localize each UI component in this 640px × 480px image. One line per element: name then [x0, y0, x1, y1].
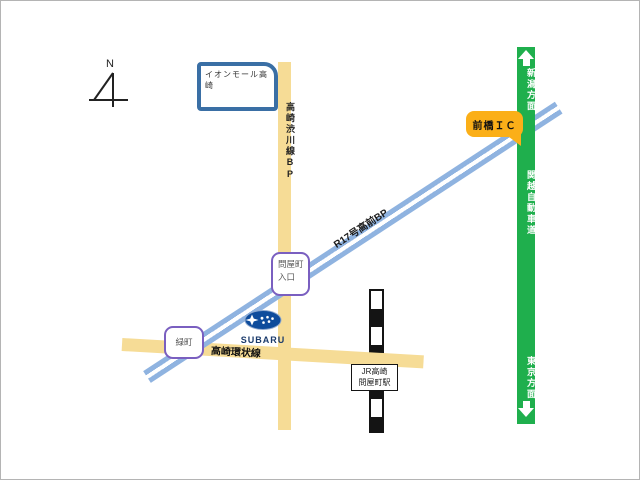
compass-n-glyph: N: [106, 58, 114, 70]
north-direction-arrow-icon: [517, 50, 535, 66]
north-arrow-icon: N: [85, 50, 135, 112]
station-label-line2: 問屋町駅: [352, 377, 397, 388]
aeon-mall-label: イオンモール高崎: [205, 70, 268, 90]
road-label-kanetsu-expressway: 関越自動車道: [517, 170, 535, 236]
road-label-takasaki-shibukawa-bp: 高崎渋川線BP: [276, 102, 294, 181]
road-r17-takamae-bypass: [143, 102, 562, 383]
direction-label-niigata: 新潟方面: [517, 68, 535, 112]
route-map: 高崎渋川線BP 高崎環状線 R17号高前BP 新潟方面 関越自動車道 東京方面 …: [0, 0, 640, 480]
landmark-aeon-mall: イオンモール高崎: [197, 62, 278, 111]
marker-midoricho: 緑町: [164, 326, 204, 359]
tonyamachi-entrance-line2: 入口: [278, 271, 308, 284]
subaru-logo-icon: [239, 309, 287, 331]
maebashi-ic-badge: 前橋ＩＣ: [466, 111, 523, 137]
marker-tonyamachi-entrance: 問屋町 入口: [271, 252, 310, 296]
subaru-wordmark: SUBARU: [239, 335, 287, 345]
maebashi-ic-label: 前橋ＩＣ: [473, 117, 517, 132]
midoricho-label: 緑町: [175, 336, 192, 349]
station-label-line1: JR高崎: [352, 366, 397, 377]
compass-north: N: [85, 50, 135, 117]
landmark-subaru-dealer: SUBARU: [239, 309, 287, 345]
landmark-jr-station: JR高崎 問屋町駅: [351, 364, 398, 391]
south-direction-arrow-icon: [517, 401, 535, 417]
direction-label-tokyo: 東京方面: [517, 356, 535, 400]
tonyamachi-entrance-line1: 問屋町: [278, 258, 308, 271]
